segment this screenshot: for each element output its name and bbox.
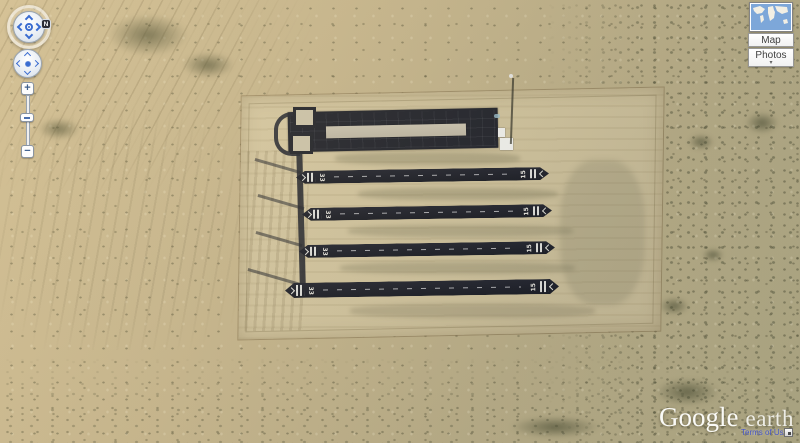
chevron-right-icon[interactable]: [33, 23, 41, 31]
runway-chevron: [539, 170, 546, 177]
chevron-left-icon[interactable]: [17, 23, 25, 31]
ground-smudge: [358, 188, 558, 200]
threshold-bars: [310, 247, 318, 256]
overview-map-button[interactable]: [749, 2, 793, 32]
chevron-left-icon[interactable]: [16, 60, 23, 67]
threshold-bars: [533, 206, 541, 215]
pan-center-icon[interactable]: [25, 61, 31, 67]
vegetation-patch: [745, 112, 779, 134]
threshold-bars: [313, 210, 321, 219]
runway-designator: 33: [318, 173, 324, 181]
terrain-washes: [0, 110, 260, 350]
vegetation-patch: [659, 297, 689, 315]
vegetation-patch: [688, 134, 714, 150]
parking-pad: [290, 133, 313, 154]
chevron-right-icon[interactable]: [32, 60, 39, 67]
model-apron: [288, 108, 499, 152]
runway-chevron: [288, 287, 295, 294]
logo-google-text: Google: [659, 402, 738, 432]
threshold-bars: [307, 173, 315, 182]
zoom-out-button[interactable]: −: [21, 145, 34, 158]
zoom-in-button[interactable]: +: [21, 82, 34, 95]
runway-chevron: [302, 248, 309, 255]
threshold-bars: [296, 285, 304, 296]
runway-designator: 15: [531, 283, 537, 291]
vegetation-patch: [38, 118, 80, 140]
chevron-down-icon: ▾: [749, 61, 793, 66]
threshold-bars: [536, 243, 544, 252]
runway-chevron: [549, 283, 556, 290]
runway-centerline: [337, 248, 517, 252]
runway-chevron: [542, 207, 549, 214]
runway-designator: 15: [521, 170, 527, 178]
terms-of-use-link[interactable]: Terms of Use: [741, 428, 788, 437]
threshold-bars: [540, 281, 548, 292]
site-building: [498, 128, 505, 137]
runway-chevron: [545, 244, 552, 251]
chevron-down-icon[interactable]: [24, 68, 31, 75]
runway-centerline: [334, 174, 511, 178]
move-joystick[interactable]: [13, 49, 42, 78]
photos-button[interactable]: Photos ▾: [748, 48, 794, 67]
ground-smudge: [348, 225, 573, 237]
world-map-thumbnail: [751, 4, 791, 30]
vegetation-patch: [182, 52, 234, 78]
chevron-up-icon[interactable]: [25, 15, 33, 23]
track-marker: [509, 74, 513, 78]
vegetation-patch: [702, 248, 724, 262]
parking-pad: [293, 107, 316, 128]
vegetation-patch: [108, 14, 188, 56]
expand-icon[interactable]: [784, 428, 793, 437]
runway-designator: 15: [527, 244, 533, 252]
runway-centerline: [323, 286, 521, 290]
runway-designator: 15: [524, 207, 530, 215]
runway-centerline: [340, 211, 514, 215]
ground-smudge: [350, 304, 595, 318]
earth-viewport[interactable]: 33 15 33 15 33 15 33 15: [0, 0, 800, 443]
runway-designator: 33: [321, 247, 327, 255]
runway-chevron: [305, 211, 312, 218]
vegetation-patch: [510, 416, 600, 438]
ground-smudge: [340, 262, 575, 274]
ground-smudge: [560, 160, 645, 305]
chevron-down-icon[interactable]: [25, 31, 33, 39]
north-indicator[interactable]: N: [41, 19, 51, 29]
map-button[interactable]: Map: [748, 33, 794, 47]
runway-designator: 33: [307, 286, 313, 294]
runway-designator: 33: [324, 210, 330, 218]
ground-smudge: [335, 152, 520, 165]
zoom-slider-handle[interactable]: [20, 113, 34, 122]
look-center-icon[interactable]: [25, 23, 33, 31]
blue-feature: [494, 114, 500, 118]
threshold-bars: [530, 169, 538, 178]
model-runway-strip: [326, 123, 466, 138]
runway-chevron: [299, 174, 306, 181]
chevron-up-icon[interactable]: [24, 52, 31, 59]
